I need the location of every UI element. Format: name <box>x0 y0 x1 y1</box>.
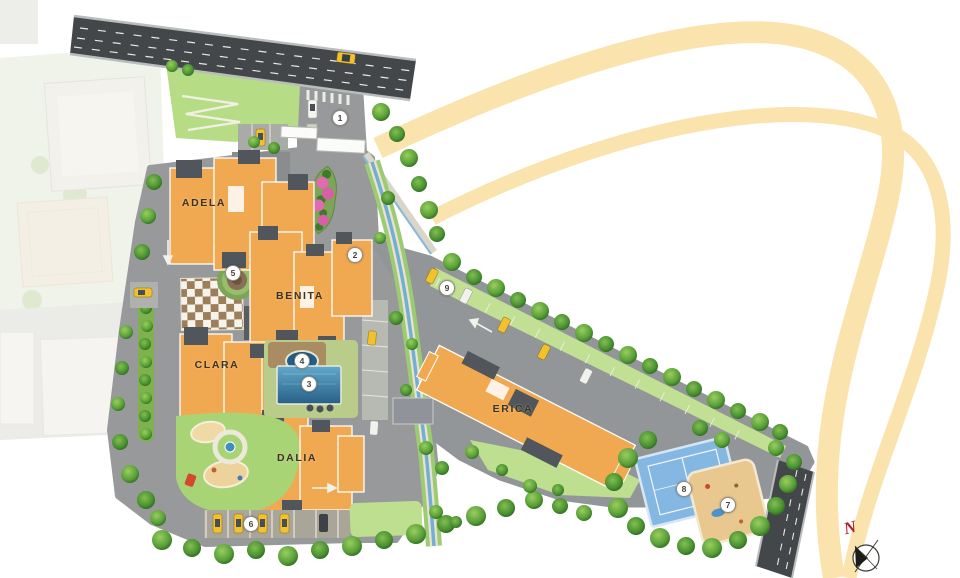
building-label-erica: ERICA <box>493 403 534 415</box>
building-label-benita: BENITA <box>276 290 324 302</box>
site-marker-8: 8 <box>676 481 692 497</box>
site-plan-artwork <box>0 0 960 578</box>
taxi <box>336 52 355 64</box>
building-label-adela: ADELA <box>182 197 226 209</box>
compass: N <box>836 520 894 578</box>
site-marker-7: 7 <box>720 497 736 513</box>
building-label-clara: CLARA <box>195 359 240 371</box>
compass-rose-icon <box>846 534 886 576</box>
site-marker-6: 6 <box>243 516 259 532</box>
building-label-dalia: DALIA <box>277 452 317 464</box>
site-marker-4: 4 <box>294 353 310 369</box>
site-marker-1: 1 <box>332 110 348 126</box>
site-plan: ADELABENITACLARADALIAERICA 123456789 N <box>0 0 960 578</box>
site-marker-5: 5 <box>225 265 241 281</box>
site-marker-2: 2 <box>347 247 363 263</box>
pool-loungers <box>307 405 334 413</box>
east-drive-parking <box>362 300 388 435</box>
bridge <box>393 398 433 424</box>
site-marker-9: 9 <box>439 280 455 296</box>
site-marker-3: 3 <box>301 376 317 392</box>
